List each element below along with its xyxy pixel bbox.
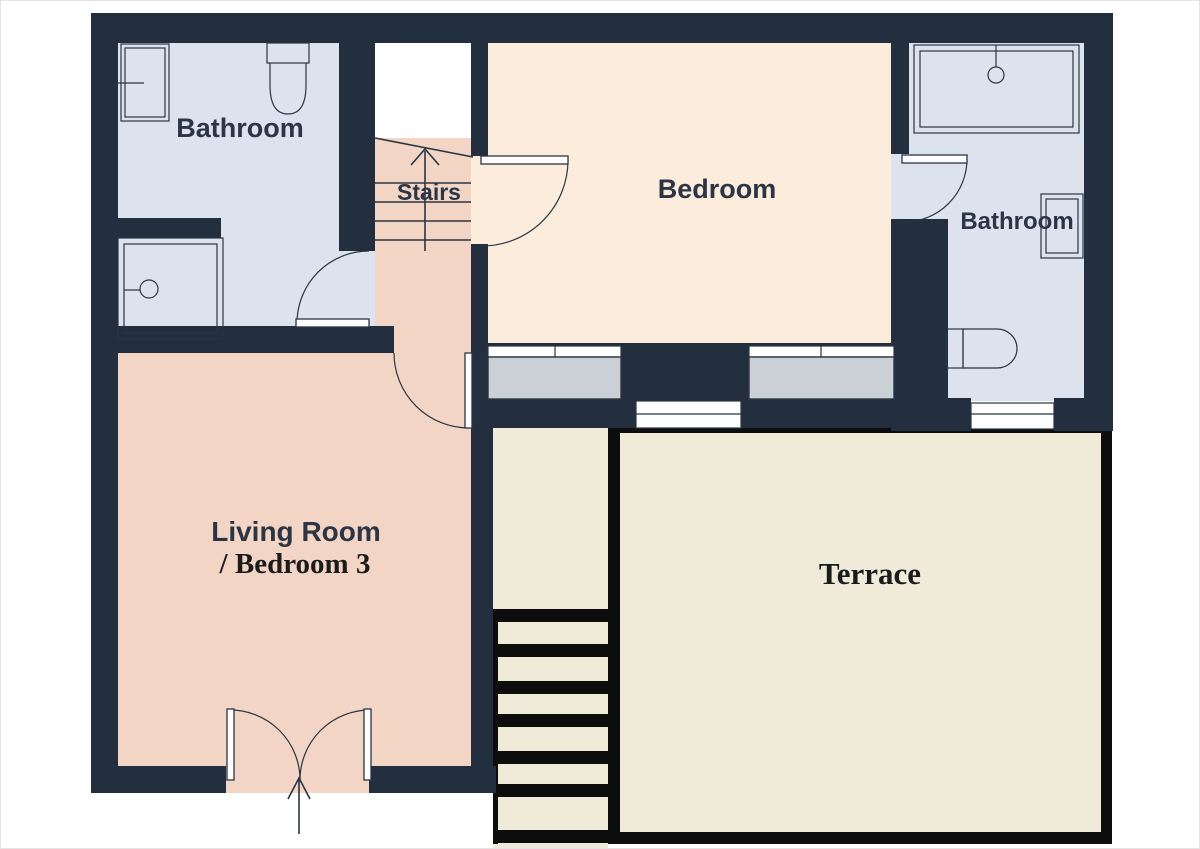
wall-bedroom-bathroomTR-upper — [891, 43, 909, 154]
stairs-label: Stairs — [397, 179, 461, 205]
terrace-label: Terrace — [819, 556, 921, 591]
bathroom-top-right-doorway-floor — [891, 154, 909, 219]
living-room-label-line1: Living Room — [211, 516, 381, 547]
bedroom-window-left-sill — [488, 357, 621, 399]
exterior-stair-step — [493, 714, 620, 727]
bedroom-label: Bedroom — [658, 174, 777, 204]
terrace-area — [608, 426, 1112, 844]
french-door-left-leaf — [227, 709, 234, 780]
bedroom-doorway-floor — [471, 156, 488, 246]
wall-bathroomTR-bottom-left — [891, 398, 971, 431]
exterior-stairs — [493, 428, 620, 849]
bathroomTL-door-leaf — [296, 319, 369, 327]
bathroom-top-right-label: Bathroom — [960, 208, 1073, 235]
wall-stairwell-bedroom-lower — [471, 244, 488, 353]
bedroom-window-right-sill — [749, 357, 894, 399]
bedroom-door-leaf — [481, 156, 568, 164]
exterior-stair-step — [493, 644, 620, 657]
bathroom-top-left-label: Bathroom — [176, 113, 304, 143]
floorplan-canvas: Bathroom Stairs Bedroom Bathroom Living … — [0, 0, 1200, 849]
wall-left — [91, 13, 118, 793]
living-room-door-leaf — [465, 353, 472, 428]
floorplan-svg: Bathroom Stairs Bedroom Bathroom Living … — [1, 1, 1200, 849]
wall-bathroomTR-bottom-right — [1054, 398, 1113, 431]
exterior-stair-step — [493, 681, 620, 694]
exterior-stair-step — [493, 784, 620, 797]
bathroomTR-window — [971, 403, 1054, 429]
stairs-hall-floor — [375, 138, 471, 353]
exterior-stair-step — [493, 609, 620, 622]
wall-bathroomTL-stairs — [339, 43, 375, 251]
stair-landing-floor — [375, 43, 471, 138]
bathroomTR-door-leaf — [902, 155, 967, 163]
wall-bottom-left — [91, 766, 226, 793]
bathroom-top-left-doorway-floor — [339, 251, 375, 329]
living-room-label-line2: / Bedroom 3 — [219, 548, 371, 580]
exterior-stair-step — [493, 830, 620, 843]
wall-right — [1084, 13, 1113, 431]
wall-top — [91, 13, 1113, 43]
wall-shower-stub — [91, 218, 221, 238]
french-door-right-leaf — [364, 709, 371, 780]
exterior-stair-step — [493, 751, 620, 764]
wall-stairwell-bedroom-upper — [471, 43, 488, 156]
terrace-floor — [620, 433, 1101, 832]
